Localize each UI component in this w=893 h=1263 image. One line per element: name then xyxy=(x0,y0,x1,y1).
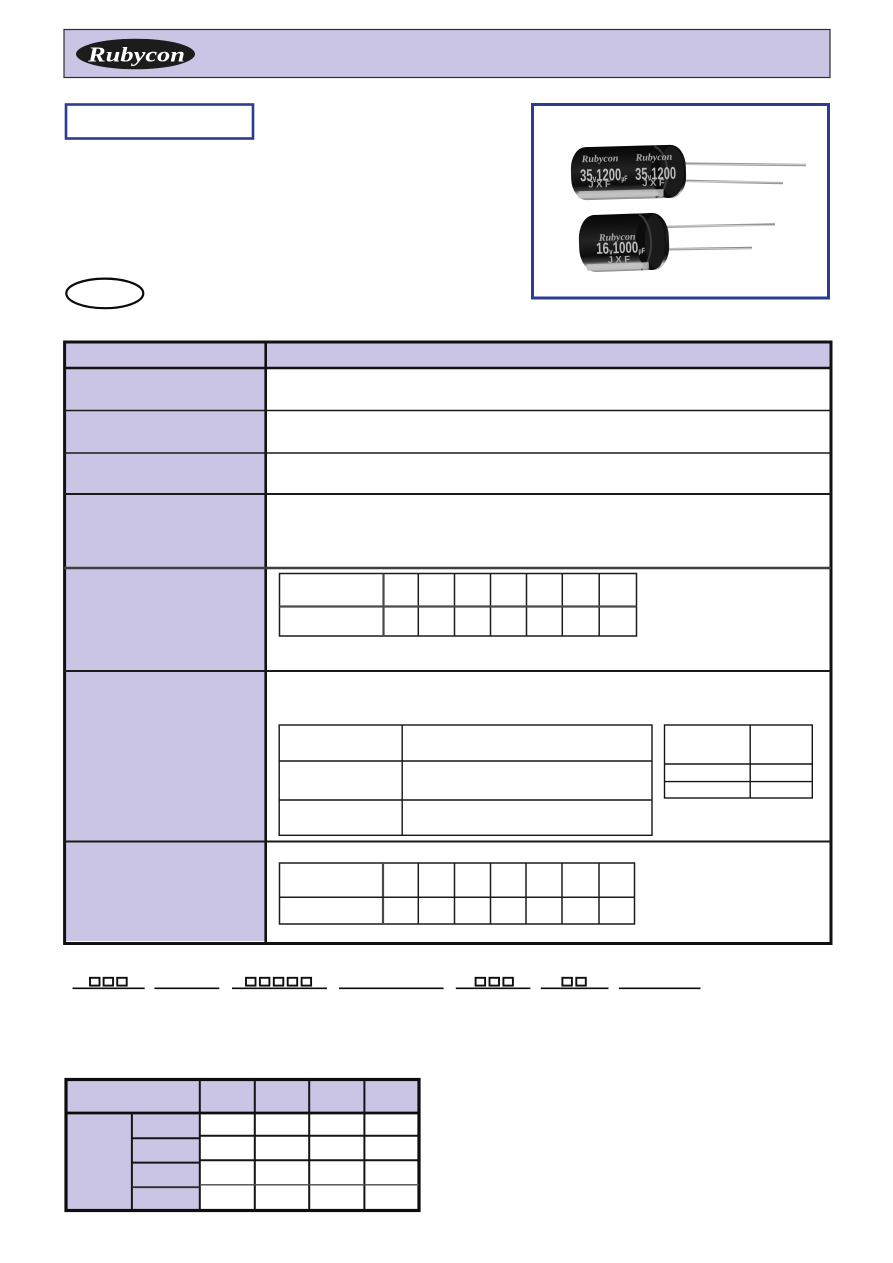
svg-text:Rubycon: Rubycon xyxy=(635,152,673,164)
svg-text:Rubycon: Rubycon xyxy=(87,43,185,67)
svg-text:JXF: JXF xyxy=(607,254,632,266)
svg-text:JXF: JXF xyxy=(588,179,613,191)
svg-text:Rubycon: Rubycon xyxy=(581,153,619,165)
svg-text:JXF: JXF xyxy=(642,177,667,189)
